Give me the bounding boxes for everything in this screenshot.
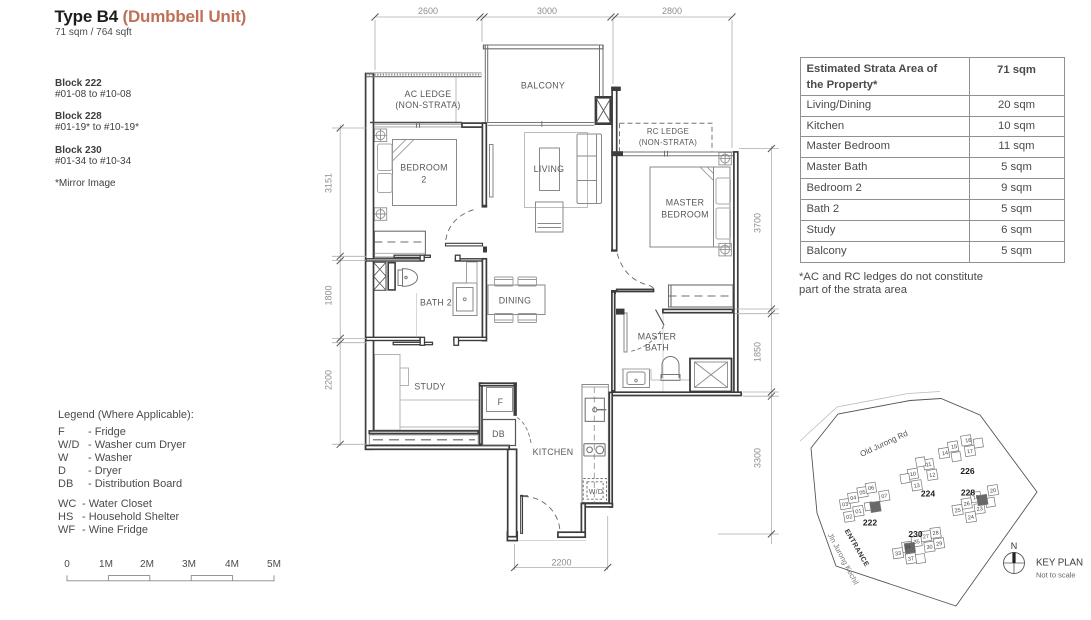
svg-text:3700: 3700 [753,213,763,233]
svg-text:STUDY: STUDY [414,382,445,392]
svg-text:RC LEDGE: RC LEDGE [647,127,689,136]
svg-text:226: 226 [960,466,974,476]
svg-text:37: 37 [908,556,915,563]
svg-text:KITCHEN: KITCHEN [533,447,574,457]
svg-text:01: 01 [855,509,862,516]
svg-text:(NON-STRATA): (NON-STRATA) [395,100,460,110]
svg-text:16: 16 [965,438,972,445]
svg-text:13: 13 [913,483,920,490]
svg-text:BEDROOM: BEDROOM [661,210,709,220]
svg-text:4M: 4M [225,559,239,570]
svg-text:DINING: DINING [499,296,532,306]
svg-text:AC LEDGE: AC LEDGE [405,89,452,99]
svg-text:224: 224 [921,489,935,499]
svg-text:5M: 5M [267,559,281,570]
svg-text:28: 28 [932,530,939,537]
svg-text:34: 34 [904,544,911,551]
svg-text:DB: DB [492,429,505,439]
svg-text:2800: 2800 [662,6,682,16]
svg-text:Not to scale: Not to scale [1036,571,1076,580]
svg-text:15: 15 [951,444,958,451]
svg-text:F: F [498,397,504,407]
svg-text:25: 25 [954,508,961,515]
svg-text:N: N [1011,541,1018,551]
svg-text:1M: 1M [99,559,113,570]
svg-text:14: 14 [942,450,949,457]
svg-text:230: 230 [908,529,922,539]
svg-text:228: 228 [961,488,975,498]
svg-text:3300: 3300 [753,448,763,468]
svg-text:1800: 1800 [324,285,334,305]
svg-text:3M: 3M [182,559,196,570]
svg-text:30: 30 [926,544,933,551]
svg-text:BALCONY: BALCONY [521,81,565,91]
svg-text:BATH 2: BATH 2 [420,298,452,308]
svg-text:BATH: BATH [645,343,669,353]
svg-text:29: 29 [936,541,943,548]
svg-text:0: 0 [64,559,70,570]
svg-text:23: 23 [976,506,983,513]
svg-text:3000: 3000 [537,6,557,16]
svg-text:24: 24 [968,515,975,522]
svg-text:20: 20 [990,488,997,495]
svg-text:2200: 2200 [551,558,571,568]
svg-text:BEDROOM: BEDROOM [400,163,448,173]
svg-text:MASTER: MASTER [666,198,704,208]
svg-text:LIVING: LIVING [534,164,565,174]
svg-text:2200: 2200 [324,370,334,390]
svg-text:W/D: W/D [589,489,604,496]
svg-text:11: 11 [925,462,932,469]
svg-text:KEY PLAN: KEY PLAN [1036,558,1083,569]
svg-text:27: 27 [923,534,930,541]
svg-text:2M: 2M [140,559,154,570]
svg-text:04: 04 [850,495,857,502]
svg-text:07: 07 [881,493,888,500]
svg-text:03: 03 [842,502,849,509]
svg-text:2600: 2600 [418,6,438,16]
svg-text:10: 10 [910,471,917,478]
svg-text:06: 06 [868,485,875,492]
svg-text:35: 35 [913,539,920,546]
svg-text:02: 02 [846,514,853,521]
svg-text:2: 2 [421,175,426,185]
svg-text:3151: 3151 [324,173,334,193]
svg-text:222: 222 [863,518,877,528]
svg-text:(NON-STRATA): (NON-STRATA) [639,138,697,147]
svg-text:26: 26 [963,501,970,508]
svg-text:05: 05 [859,490,866,497]
svg-text:1850: 1850 [753,342,763,362]
svg-text:33: 33 [895,551,902,558]
svg-text:MASTER: MASTER [638,332,676,342]
svg-text:17: 17 [967,449,974,456]
svg-text:12: 12 [929,472,936,479]
